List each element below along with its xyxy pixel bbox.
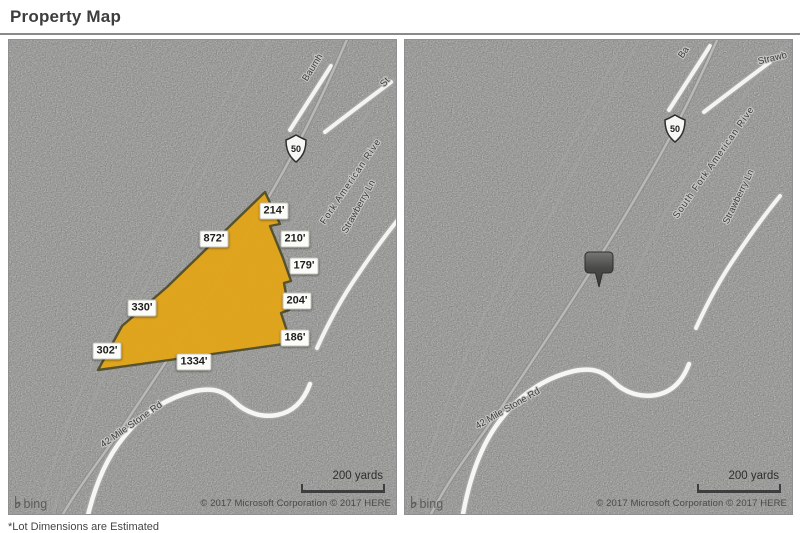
page-title: Property Map [10,7,800,27]
lot-dimension-label: 210' [281,231,310,248]
map-scale: 200 yards [697,470,781,493]
locator-map-canvas: Ba Strawb South Fork American Rive Straw… [405,40,792,514]
lot-dimension-label: 204' [283,293,312,310]
lot-dimension-label: 330' [128,300,157,317]
parcel-map-panel[interactable]: Baumh St Fork American Rive Strawberry L… [8,39,397,515]
scale-label: 200 yards [301,470,385,482]
bing-logo: ♭ bing [410,497,443,511]
bing-logo: ♭ bing [14,497,47,511]
bing-icon: ♭ [410,498,418,510]
scale-bar [301,484,385,493]
svg-text:50: 50 [670,124,680,134]
map-copyright: © 2017 Microsoft Corporation © 2017 HERE [596,498,787,509]
scale-bar [697,484,781,493]
title-divider [0,33,800,35]
scale-label: 200 yards [697,470,781,482]
bing-wordmark: bing [420,497,444,511]
lot-dimension-label: 1334' [176,354,211,371]
svg-text:50: 50 [291,144,301,154]
parcel-map-canvas: Baumh St Fork American Rive Strawberry L… [9,40,396,514]
map-copyright: © 2017 Microsoft Corporation © 2017 HERE [200,498,391,509]
lot-dimension-label: 302' [93,343,122,360]
bing-wordmark: bing [24,497,48,511]
locator-map-panel[interactable]: Ba Strawb South Fork American Rive Straw… [404,39,793,515]
lot-dimension-label: 872' [200,231,229,248]
lot-dimension-label: 179' [290,258,319,275]
property-maps-row: Baumh St Fork American Rive Strawberry L… [8,39,800,515]
lot-dimension-label: 214' [260,203,289,220]
bing-icon: ♭ [14,498,22,510]
map-scale: 200 yards [301,470,385,493]
lot-dimensions-footnote: *Lot Dimensions are Estimated [8,521,800,533]
lot-dimension-label: 186' [281,330,310,347]
